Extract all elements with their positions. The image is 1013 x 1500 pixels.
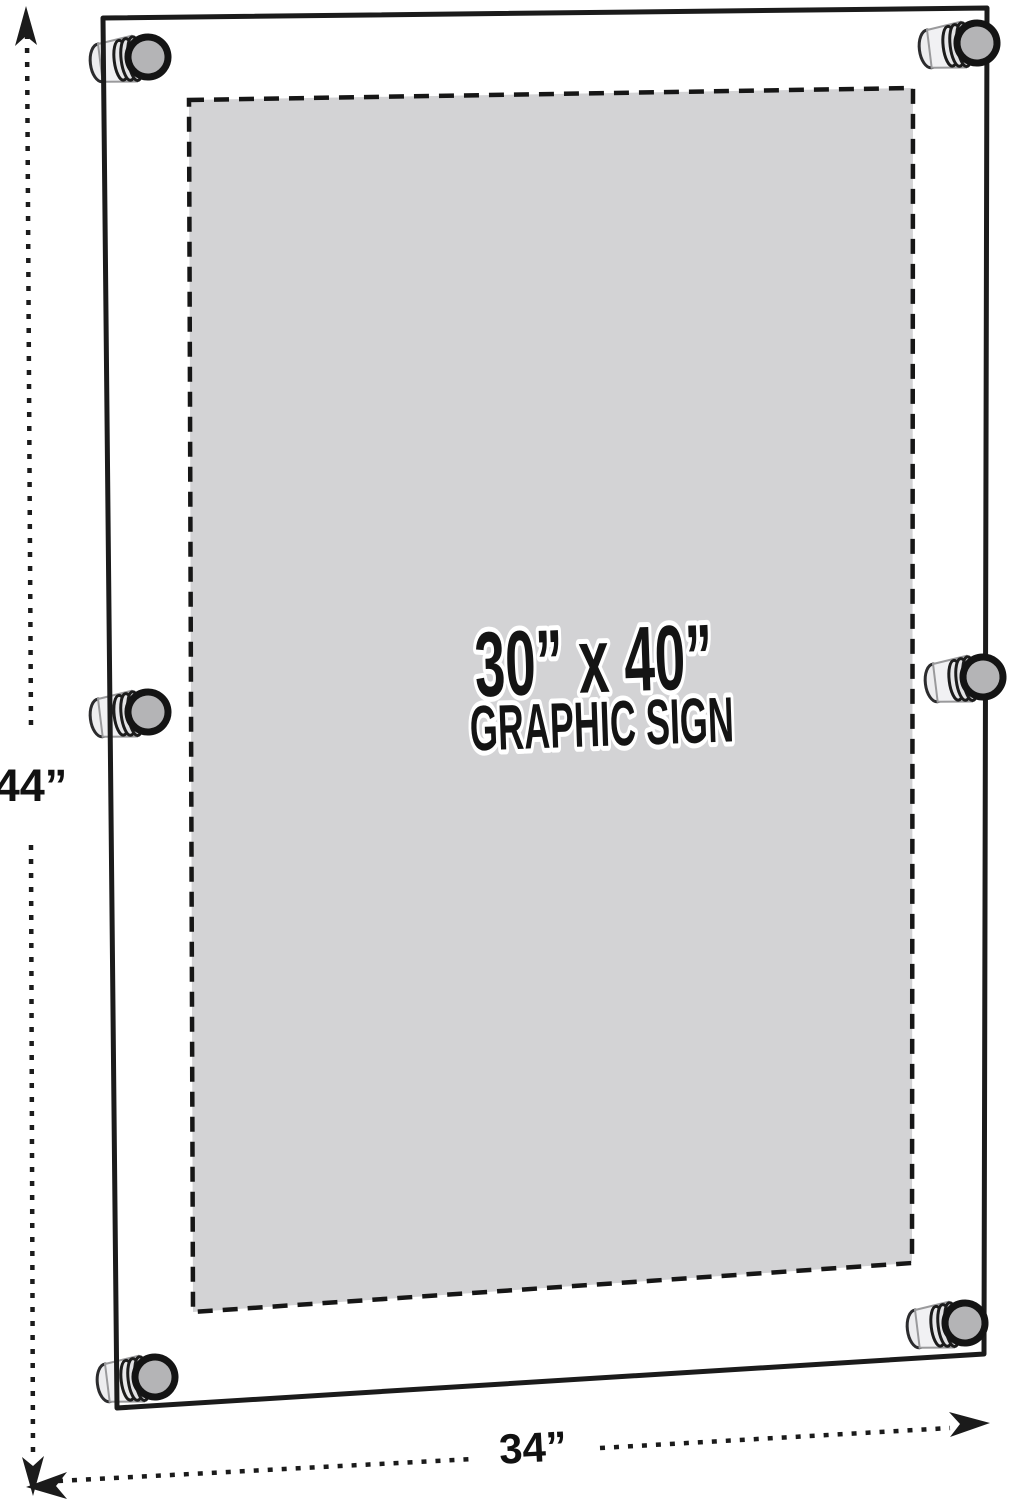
standoff-face-bottom-right (929, 1299, 988, 1349)
product-diagram: 30” x 40” GRAPHIC SIGN (0, 0, 1013, 1500)
standoff-face-bottom-left (119, 1353, 178, 1403)
width-dimension-line-left (58, 1459, 473, 1481)
sign-label-group: 30” x 40” GRAPHIC SIGN (466, 605, 735, 764)
height-dimension-line-lower (31, 845, 33, 1456)
height-dimension-label: 44” (0, 760, 67, 811)
width-dimension-line-right (600, 1428, 950, 1448)
height-dimension-line-upper (27, 34, 31, 727)
width-dimension-label: 34” (498, 1422, 568, 1472)
sign-frame-diagram: 30” x 40” GRAPHIC SIGN (0, 0, 1013, 1500)
standoff-face-top-right (941, 19, 1000, 69)
standoff-face-middle-left (112, 688, 171, 738)
sign-type-label: GRAPHIC SIGN (469, 683, 735, 764)
arrow-right-icon (949, 1412, 990, 1437)
standoff-face-middle-right (947, 653, 1006, 703)
arrow-up-icon (15, 6, 37, 46)
standoff-face-top-left (112, 33, 171, 83)
